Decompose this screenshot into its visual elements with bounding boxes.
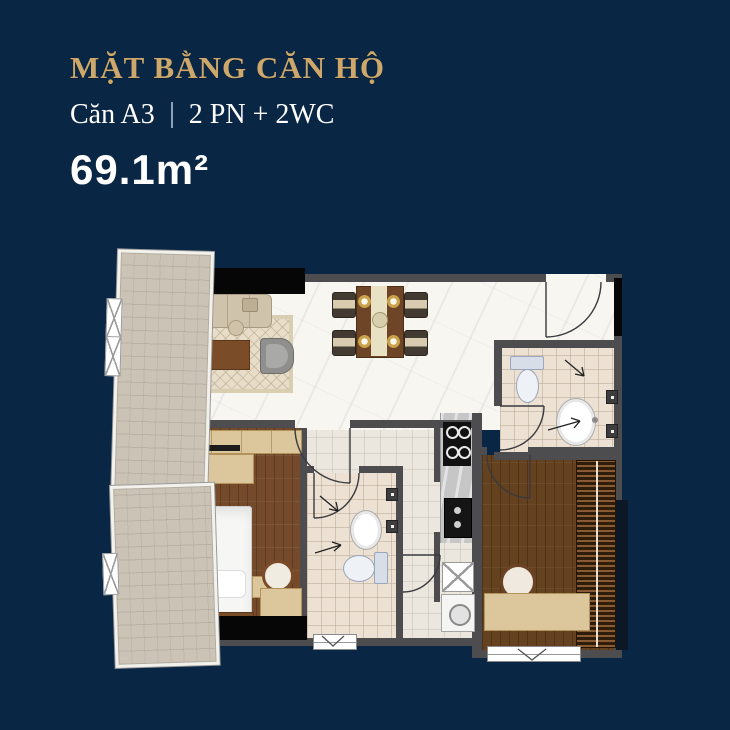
apartment-floorplan-page: MẶT BẰNG CĂN HỘ Căn A3 2 PN + 2WC 69.1m² bbox=[0, 0, 730, 730]
floor-plan bbox=[110, 248, 670, 688]
window-chevrons bbox=[322, 636, 546, 660]
plan-annotations bbox=[110, 248, 670, 688]
unit-subtitle: Căn A3 2 PN + 2WC bbox=[70, 99, 334, 131]
unit-spec: 2 PN + 2WC bbox=[189, 99, 335, 131]
page-title: MẶT BẰNG CĂN HỘ bbox=[70, 50, 385, 86]
subtitle-divider bbox=[171, 102, 173, 128]
direction-arrows bbox=[315, 360, 584, 553]
unit-name: Căn A3 bbox=[70, 99, 155, 131]
unit-area: 69.1m² bbox=[70, 146, 209, 194]
